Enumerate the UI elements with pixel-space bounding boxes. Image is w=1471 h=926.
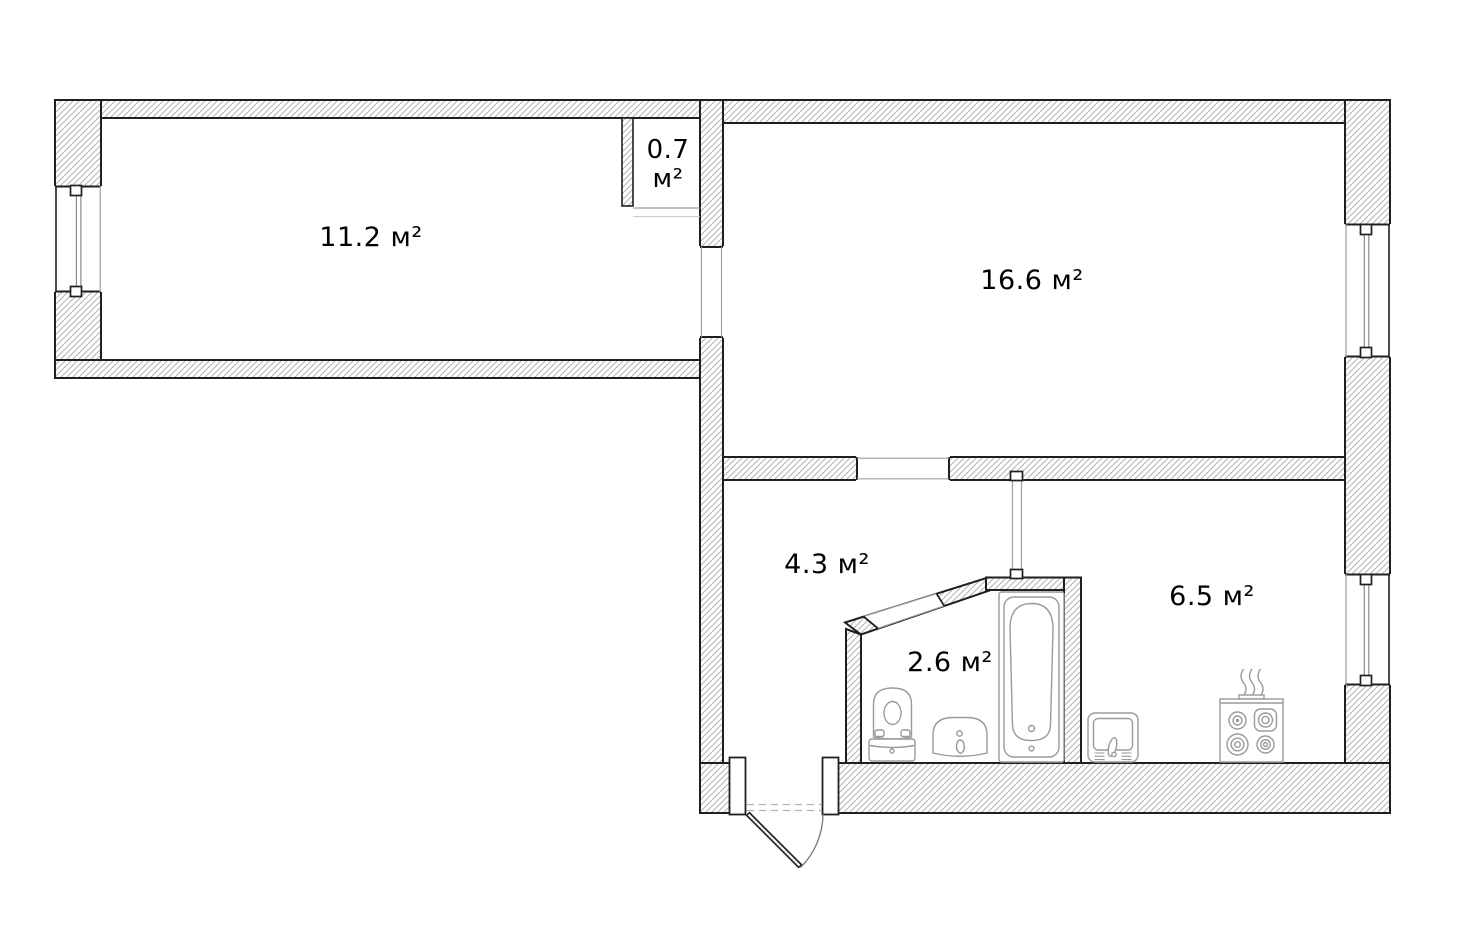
door-jamb-right bbox=[823, 758, 839, 815]
floor-plan-drawing bbox=[0, 0, 1471, 926]
doorway-room-small-to-room-large bbox=[698, 246, 725, 338]
wall-top-right-block bbox=[700, 100, 1390, 123]
wall-niche bbox=[622, 118, 633, 206]
niche-area-value: 0.7 bbox=[647, 136, 690, 165]
niche-area-unit: м² bbox=[647, 165, 690, 194]
kitchen-sink-icon bbox=[1088, 713, 1138, 762]
bathtub-icon bbox=[999, 592, 1064, 762]
window-room-large bbox=[1343, 224, 1392, 358]
room-label-16-6: 16.6 м² bbox=[980, 266, 1083, 296]
wall-bathroom-right bbox=[1064, 578, 1081, 764]
toilet-icon bbox=[869, 688, 915, 761]
room-label-6-5: 6.5 м² bbox=[1169, 582, 1255, 612]
wall-right-outer bbox=[1345, 100, 1390, 813]
room-label-2-6: 2.6 м² bbox=[907, 648, 993, 678]
kitchen-fixtures bbox=[1088, 669, 1283, 762]
floor-plan: 11.2 м² 0.7 м² 16.6 м² 4.3 м² 2.6 м² 6.5… bbox=[0, 0, 1471, 926]
stove-steam-icon bbox=[1241, 669, 1263, 696]
wall-middle-vertical bbox=[700, 100, 723, 813]
wall-top-left-block bbox=[55, 100, 723, 118]
entrance-door bbox=[730, 758, 839, 868]
window-room-small bbox=[53, 186, 103, 297]
room-label-niche: 0.7 м² bbox=[647, 136, 690, 194]
washbasin-icon bbox=[933, 718, 987, 757]
gas-stove-icon bbox=[1220, 695, 1283, 762]
door-swing-arc bbox=[801, 814, 824, 868]
wall-divider-room-hall bbox=[723, 457, 1345, 480]
wall-bottom-left-block bbox=[55, 360, 723, 378]
wall-bathroom-left bbox=[846, 629, 861, 763]
niche-threshold bbox=[633, 208, 700, 217]
window-kitchen bbox=[1343, 574, 1392, 686]
door-jamb-left bbox=[730, 758, 746, 815]
room-label-11-2: 11.2 м² bbox=[319, 223, 422, 253]
walls bbox=[55, 100, 1390, 813]
doorway-room-large-to-hallway bbox=[856, 455, 950, 482]
room-label-4-3: 4.3 м² bbox=[784, 550, 870, 580]
partition-hall-kitchen bbox=[1011, 472, 1023, 579]
